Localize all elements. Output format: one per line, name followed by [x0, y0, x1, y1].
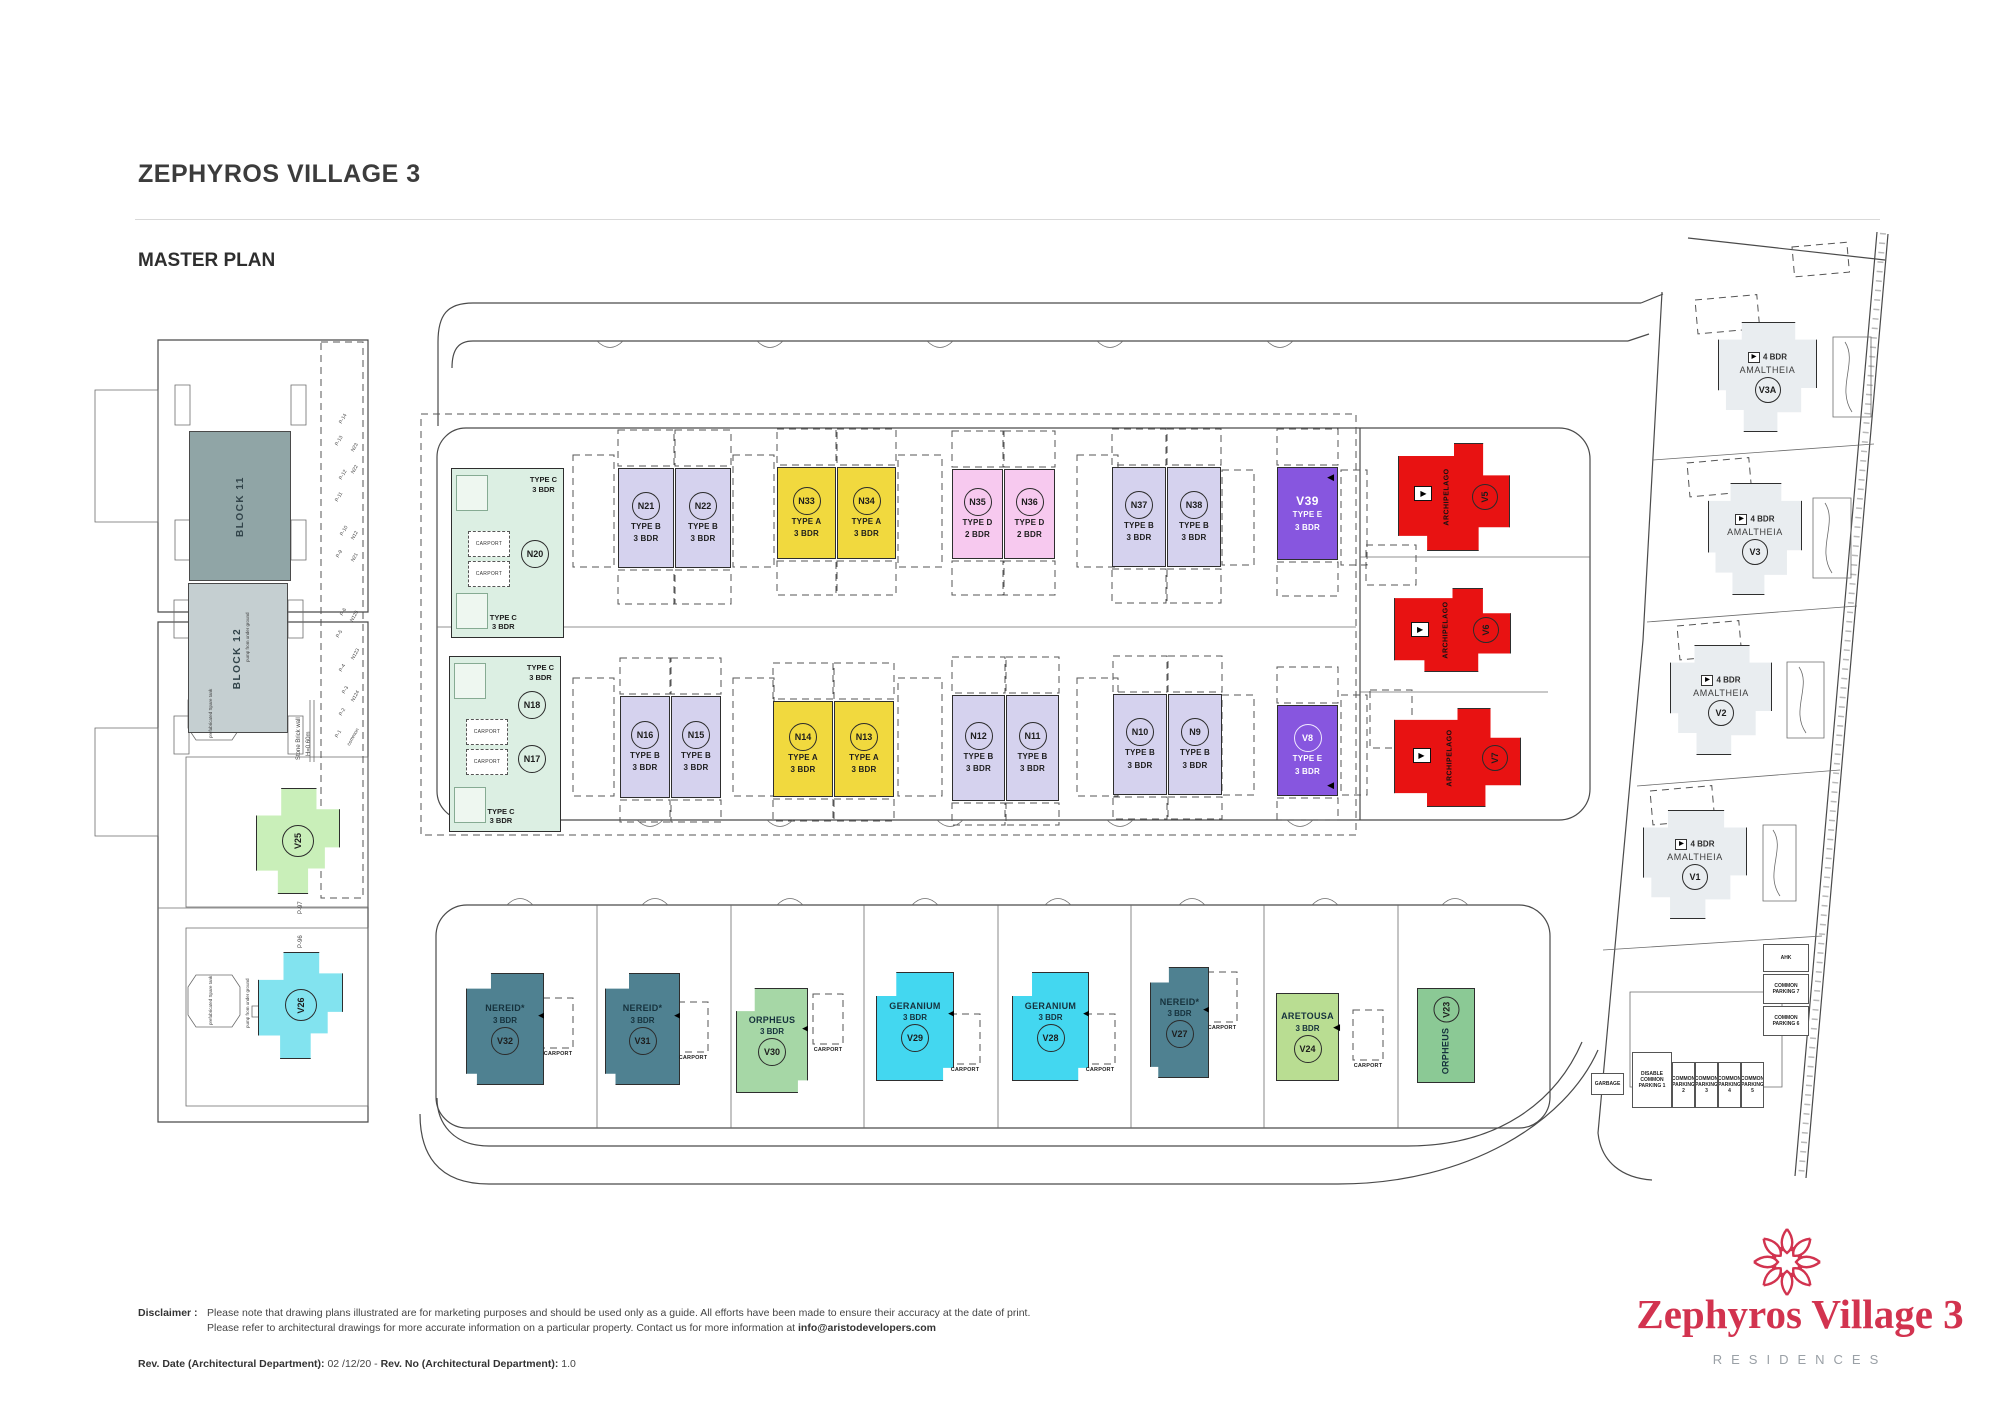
parking-box: GARBAGE — [1591, 1073, 1624, 1095]
unit-content: N37TYPE B3 BDR — [1113, 468, 1165, 566]
unit-type-label: TYPE A — [792, 517, 822, 527]
unit-code-badge: N15 — [682, 721, 710, 749]
typec-bdr: 3 BDR — [527, 673, 554, 683]
typec-label: TYPE C3 BDR — [487, 807, 514, 827]
unit-n33: N33TYPE A3 BDR — [777, 467, 836, 559]
unit-content: N35TYPE D2 BDR — [953, 470, 1002, 558]
unit-content: NEREID*3 BDRV32 — [467, 974, 543, 1084]
typec-bdr: 3 BDR — [490, 622, 517, 632]
plan-annotation: P-96 — [298, 935, 304, 948]
block-11: BLOCK 11 — [189, 431, 291, 581]
unit-type-label: TYPE A — [788, 753, 818, 763]
unit-type-label: TYPE B — [1125, 748, 1155, 758]
unit-v27: NEREID*3 BDRV27◀ — [1150, 967, 1209, 1078]
unit-type-label: TYPE B — [1017, 752, 1047, 762]
unit-code: V39 — [1296, 494, 1319, 508]
block-label: BLOCK 11 — [235, 476, 246, 537]
unit-code-wrap: N20 — [521, 540, 549, 568]
unit-bdr: 3 BDR — [1038, 1013, 1062, 1022]
unit-content: N33TYPE A3 BDR — [778, 468, 835, 558]
unit-n16: N16TYPE B3 BDR — [620, 696, 670, 798]
room-outline — [456, 593, 488, 629]
carport-label: CARPORT — [1086, 1067, 1115, 1073]
carport-label: CARPORT — [1354, 1063, 1383, 1069]
unit-bdr: 3 BDR — [760, 1027, 784, 1036]
plan-annotation: P-97 — [298, 901, 304, 914]
parking-box: COMMON PARKING 3 — [1695, 1062, 1718, 1108]
unit-code-badge: N16 — [631, 721, 659, 749]
unit-code-badge: V5 — [1472, 484, 1498, 510]
door-arrow-icon: ◀ — [674, 1011, 681, 1020]
typec-label: TYPE C3 BDR — [527, 663, 554, 683]
parking-box: COMMON PARKING 5 — [1741, 1062, 1764, 1108]
disclaimer-line2-text: Please refer to architectural drawings f… — [207, 1322, 798, 1334]
unit-v24: ARETOUSA3 BDRV24◀ — [1276, 993, 1339, 1081]
unit-code-wrap: V6 — [1473, 617, 1499, 643]
rev-date-label: Rev. Date (Architectural Department): — [138, 1358, 327, 1370]
logo-tagline: RESIDENCES — [1600, 1352, 2000, 1367]
unit-type-label: 3 BDR — [1126, 533, 1151, 543]
entrance-arrow-icon: ▶ — [1411, 622, 1429, 637]
entrance-arrow-icon: ▶ — [1414, 486, 1432, 501]
unit-type-label: TYPE B — [631, 522, 661, 532]
parking-box: DISABLE COMMON PARKING 1 — [1632, 1052, 1672, 1108]
revision-note: Rev. Date (Architectural Department): 02… — [138, 1358, 576, 1370]
unit-code-badge: V28 — [1037, 1024, 1065, 1052]
carport-box: CARPORT — [468, 531, 510, 557]
unit-name: ORPHEUS — [749, 1015, 796, 1026]
unit-code-badge: N35 — [964, 488, 992, 516]
disclaimer-line2: Please refer to architectural drawings f… — [207, 1322, 1307, 1334]
typec-cluster-1: TYPE C3 BDRTYPE C3 BDRCARPORTCARPORTN20 — [451, 468, 564, 638]
door-arrow-icon: ◀ — [538, 1011, 545, 1020]
typec-bdr: 3 BDR — [487, 816, 514, 826]
unit-bdr: ▶4 BDR — [1748, 352, 1787, 363]
unit-n34: N34TYPE A3 BDR — [837, 467, 896, 559]
unit-content: N11TYPE B3 BDR — [1007, 696, 1058, 800]
unit-type-label: 3 BDR — [690, 534, 715, 544]
plan-annotation: H=0.60m — [306, 731, 312, 756]
unit-code-badge: V6 — [1473, 617, 1499, 643]
room-outline — [454, 663, 486, 699]
unit-type-label: TYPE A — [852, 517, 882, 527]
unit-v39: V39TYPE E3 BDR◀ — [1277, 467, 1338, 560]
unit-code-badge: N14 — [789, 723, 817, 751]
unit-name: GERANIUM — [889, 1001, 940, 1012]
unit-content: ORPHEUSV23 — [1400, 1008, 1493, 1064]
entrance-arrow-icon: ▶ — [1748, 352, 1760, 363]
unit-code-badge: N37 — [1125, 491, 1153, 519]
disclaimer-line1: Please note that drawing plans illustrat… — [207, 1307, 1307, 1319]
door-arrow-icon: ◀ — [948, 1009, 955, 1018]
disclaimer-label: Disclaimer : — [138, 1307, 198, 1319]
unit-type-label: 3 BDR — [1127, 761, 1152, 771]
unit-content: NEREID*3 BDRV27 — [1151, 968, 1208, 1077]
unit-name: GERANIUM — [1025, 1001, 1076, 1012]
unit-type-label: 3 BDR — [1181, 533, 1206, 543]
unit-code-badge: N34 — [853, 487, 881, 515]
unit-name: AMALTHEIA — [1727, 527, 1783, 537]
unit-content: N10TYPE B3 BDR — [1114, 695, 1166, 794]
unit-type-label: TYPE A — [849, 753, 879, 763]
unit-n38: N38TYPE B3 BDR — [1167, 467, 1221, 567]
unit-code-badge: V31 — [629, 1027, 657, 1055]
rev-date-value: 02 /12/20 - — [327, 1358, 380, 1370]
unit-code-badge: N33 — [793, 487, 821, 515]
unit-type-label: TYPE E — [1293, 510, 1323, 520]
unit-type-label: TYPE B — [1180, 748, 1210, 758]
unit-type-label: 3 BDR — [683, 763, 708, 773]
unit-name: NEREID* — [485, 1003, 525, 1014]
generated-linework — [321, 242, 1849, 1064]
unit-code-badge: V3 — [1742, 539, 1768, 565]
unit-code-badge: N21 — [632, 492, 660, 520]
unit-bdr: 3 BDR — [1295, 1024, 1319, 1033]
unit-code-badge: N22 — [689, 492, 717, 520]
door-arrow-icon: ◀ — [1203, 1005, 1210, 1014]
unit-content: N16TYPE B3 BDR — [621, 697, 669, 797]
unit-v23: ORPHEUSV23 — [1417, 988, 1475, 1083]
unit-content: N22TYPE B3 BDR — [676, 469, 730, 567]
unit-code-badge: N12 — [965, 722, 993, 750]
unit-type-label: 3 BDR — [966, 764, 991, 774]
unit-n35: N35TYPE D2 BDR — [952, 469, 1003, 559]
unit-type-label: 3 BDR — [854, 529, 879, 539]
unit-type-label: 3 BDR — [794, 529, 819, 539]
block-label: BLOCK 12 — [232, 627, 243, 688]
parking-box: COMMON PARKING 6 — [1763, 1006, 1809, 1036]
unit-code-badge: N38 — [1180, 491, 1208, 519]
typec-cluster-2: TYPE C3 BDRTYPE C3 BDRCARPORTCARPORTN18N… — [449, 656, 561, 832]
unit-type-label: 2 BDR — [965, 530, 990, 540]
master-plan-page: ZEPHYROS VILLAGE 3 MASTER PLAN — [0, 0, 2000, 1414]
unit-code-badge: V25 — [282, 825, 314, 857]
unit-code-badge: V3A — [1755, 377, 1781, 403]
plan-annotation: prefabricated Spare tank — [208, 976, 213, 1025]
entrance-arrow-icon: ▶ — [1701, 675, 1713, 686]
carport-label: CARPORT — [544, 1051, 573, 1057]
plan-annotation: Stone Brick wall — [296, 717, 302, 760]
unit-content: N13TYPE A3 BDR — [835, 702, 893, 796]
unit-n37: N37TYPE B3 BDR — [1112, 467, 1166, 567]
unit-type-label: 3 BDR — [632, 763, 657, 773]
unit-code-badge: V7 — [1482, 745, 1508, 771]
entrance-arrow-icon: ▶ — [1413, 748, 1431, 763]
typec-bdr: 3 BDR — [530, 485, 557, 495]
unit-n13: N13TYPE A3 BDR — [834, 701, 894, 797]
door-arrow-icon: ◀ — [1327, 781, 1334, 790]
unit-bdr: ▶4 BDR — [1675, 839, 1714, 850]
unit-content: N38TYPE B3 BDR — [1168, 468, 1220, 566]
unit-code-badge: N11 — [1019, 722, 1047, 750]
unit-type-label: TYPE D — [1014, 518, 1044, 528]
parking-box: COMMON PARKING 2 — [1672, 1062, 1695, 1108]
unit-v8: V8TYPE E3 BDR◀ — [1277, 705, 1338, 796]
contact-email: info@aristodevelopers.com — [798, 1322, 936, 1334]
room-outline — [454, 787, 486, 823]
block-12: BLOCK 12 — [188, 583, 288, 733]
unit-bdr: 3 BDR — [630, 1016, 654, 1025]
unit-code-badge: N9 — [1181, 718, 1209, 746]
unit-content: NEREID*3 BDRV31 — [606, 974, 679, 1084]
carport-box: CARPORT — [466, 719, 508, 745]
unit-bdr: 3 BDR — [903, 1013, 927, 1022]
unit-code-badge: V24 — [1294, 1035, 1322, 1063]
unit-code-badge: N20 — [521, 540, 549, 568]
plan-annotation: pump from under ground — [245, 978, 250, 1028]
unit-type-label: TYPE B — [963, 752, 993, 762]
unit-content: N34TYPE A3 BDR — [838, 468, 895, 558]
unit-type-label: TYPE B — [630, 751, 660, 761]
unit-n22: N22TYPE B3 BDR — [675, 468, 731, 568]
unit-n21: N21TYPE B3 BDR — [618, 468, 674, 568]
door-arrow-icon: ◀ — [1083, 1009, 1090, 1018]
unit-type-label: TYPE B — [1179, 521, 1209, 531]
unit-code-badge: N13 — [850, 723, 878, 751]
unit-code-wrap: N18 — [518, 691, 546, 719]
unit-code-badge: V30 — [758, 1038, 786, 1066]
unit-n10: N10TYPE B3 BDR — [1113, 694, 1167, 795]
parking-box: AHK — [1763, 944, 1809, 972]
unit-name: AMALTHEIA — [1740, 365, 1796, 375]
unit-n36: N36TYPE D2 BDR — [1004, 469, 1055, 559]
unit-code-badge: V2 — [1708, 700, 1734, 726]
unit-code-wrap: N17 — [518, 745, 546, 773]
unit-type-label: 3 BDR — [1020, 764, 1045, 774]
unit-name: NEREID* — [623, 1003, 663, 1014]
unit-bdr: 3 BDR — [1167, 1009, 1191, 1018]
unit-bdr: ▶4 BDR — [1701, 675, 1740, 686]
rev-no-value: 1.0 — [561, 1358, 576, 1370]
unit-code-badge: N18 — [518, 691, 546, 719]
unit-type-label: TYPE B — [1124, 521, 1154, 531]
door-arrow-icon: ◀ — [1327, 473, 1334, 482]
unit-type-label: 3 BDR — [1182, 761, 1207, 771]
parking-box: COMMON PARKING 7 — [1763, 974, 1809, 1004]
unit-content: N36TYPE D2 BDR — [1005, 470, 1054, 558]
carport-label: CARPORT — [1208, 1025, 1237, 1031]
unit-name: ARETOUSA — [1281, 1011, 1334, 1022]
unit-type-label: 3 BDR — [851, 765, 876, 775]
unit-n11: N11TYPE B3 BDR — [1006, 695, 1059, 801]
unit-type-label: 3 BDR — [1295, 523, 1320, 533]
unit-code-badge: V27 — [1166, 1020, 1194, 1048]
unit-code-wrap: V7 — [1482, 745, 1508, 771]
unit-name: ORPHEUS — [1441, 1028, 1452, 1075]
room-outline — [456, 475, 488, 511]
unit-content: N15TYPE B3 BDR — [672, 697, 720, 797]
unit-name: AMALTHEIA — [1667, 852, 1723, 862]
unit-code-badge: N36 — [1016, 488, 1044, 516]
unit-content: N21TYPE B3 BDR — [619, 469, 673, 567]
carport-label: CARPORT — [679, 1055, 708, 1061]
plan-annotation: pump from under ground — [245, 612, 250, 662]
logo-name: Zephyros Village 3 — [1600, 1290, 2000, 1338]
unit-content: N14TYPE A3 BDR — [774, 702, 832, 796]
unit-name: AMALTHEIA — [1693, 688, 1749, 698]
unit-name: NEREID* — [1160, 997, 1200, 1008]
parking-box: COMMON PARKING 4 — [1718, 1062, 1741, 1108]
door-arrow-icon: ◀ — [802, 1024, 809, 1033]
unit-code-badge: N17 — [518, 745, 546, 773]
unit-n9: N9TYPE B3 BDR — [1168, 694, 1222, 795]
typec-label: TYPE C3 BDR — [490, 613, 517, 633]
unit-bdr: 3 BDR — [493, 1016, 517, 1025]
carport-label: CARPORT — [951, 1067, 980, 1073]
unit-type-label: 3 BDR — [633, 534, 658, 544]
typec-label: TYPE C3 BDR — [530, 475, 557, 495]
unit-code-wrap: V5 — [1472, 484, 1498, 510]
unit-code-badge: V8 — [1294, 724, 1322, 752]
unit-type-label: TYPE B — [681, 751, 711, 761]
carport-box: CARPORT — [468, 561, 510, 587]
unit-content: ARETOUSA3 BDRV24 — [1277, 994, 1338, 1080]
rev-no-label: Rev. No (Architectural Department): — [381, 1358, 562, 1370]
unit-code-badge: V32 — [491, 1027, 519, 1055]
unit-n15: N15TYPE B3 BDR — [671, 696, 721, 798]
unit-content: N9TYPE B3 BDR — [1169, 695, 1221, 794]
plan-annotation: prefabricated Spare tank — [208, 689, 213, 738]
roads-top — [438, 294, 1663, 426]
unit-name: ARCHIPELAGO — [1444, 468, 1451, 525]
unit-content: N12TYPE B3 BDR — [953, 696, 1004, 800]
unit-code-badge: N10 — [1126, 718, 1154, 746]
unit-type-label: 3 BDR — [790, 765, 815, 775]
logo-flower-icon — [1754, 1229, 1820, 1295]
unit-type-label: TYPE E — [1293, 754, 1323, 764]
unit-type-label: TYPE B — [688, 522, 718, 532]
unit-name: ARCHIPELAGO — [1447, 729, 1454, 786]
unit-bdr: ▶4 BDR — [1735, 514, 1774, 525]
unit-code-badge: V1 — [1682, 864, 1708, 890]
door-arrow-icon: ◀ — [1333, 1023, 1340, 1032]
carport-box: CARPORT — [466, 749, 508, 775]
unit-n14: N14TYPE A3 BDR — [773, 701, 833, 797]
unit-v32: NEREID*3 BDRV32◀ — [466, 973, 544, 1085]
unit-n12: N12TYPE B3 BDR — [952, 695, 1005, 801]
unit-type-label: 3 BDR — [1295, 767, 1320, 777]
unit-name: ARCHIPELAGO — [1442, 601, 1449, 658]
unit-v31: NEREID*3 BDRV31◀ — [605, 973, 680, 1085]
carport-label: CARPORT — [814, 1047, 843, 1053]
unit-type-label: TYPE D — [962, 518, 992, 528]
entrance-arrow-icon: ▶ — [1675, 839, 1687, 850]
unit-code-badge: V23 — [1433, 997, 1459, 1023]
unit-code-badge: V29 — [901, 1024, 929, 1052]
unit-type-label: 2 BDR — [1017, 530, 1042, 540]
unit-code-badge: V26 — [285, 990, 317, 1022]
entrance-arrow-icon: ▶ — [1735, 514, 1747, 525]
